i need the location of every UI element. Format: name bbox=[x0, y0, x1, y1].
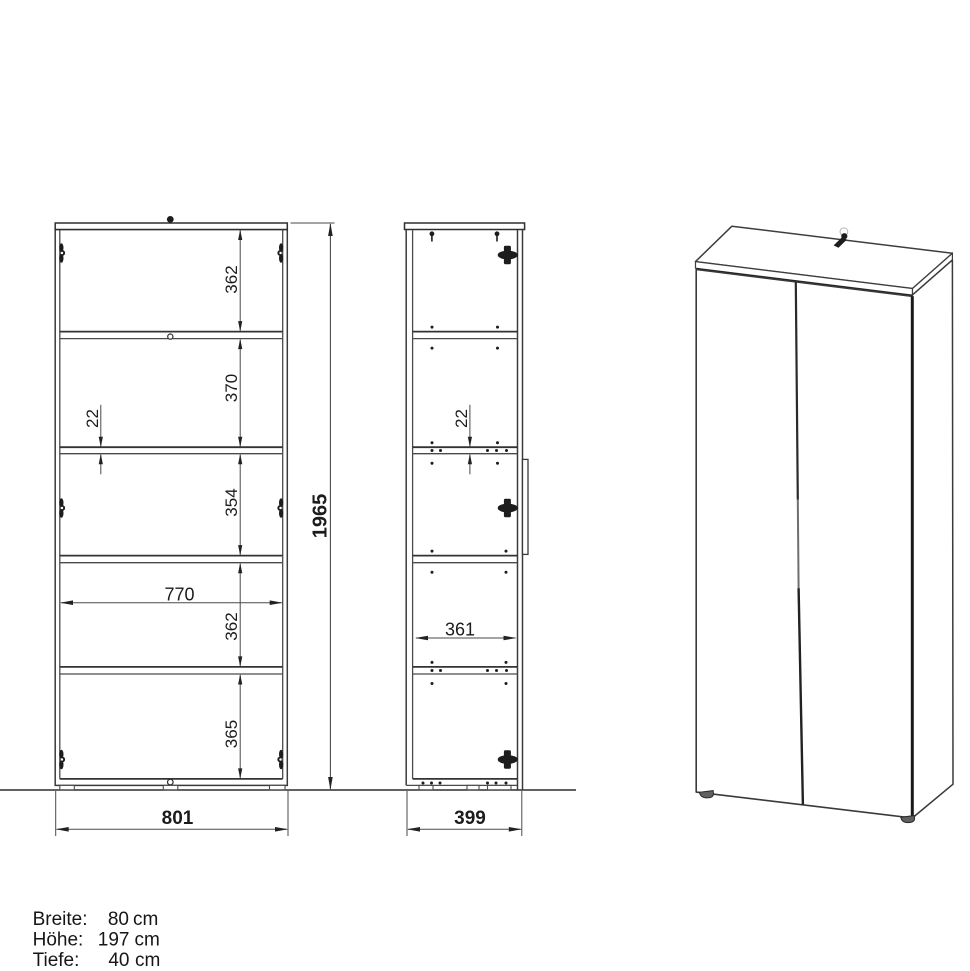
svg-text:Breite:: Breite: bbox=[33, 909, 88, 930]
svg-text:370: 370 bbox=[222, 374, 241, 402]
svg-text:361: 361 bbox=[445, 619, 475, 639]
svg-text:Höhe:: Höhe: bbox=[33, 930, 84, 951]
svg-text:362: 362 bbox=[222, 265, 241, 293]
svg-text:197: 197 bbox=[98, 930, 130, 951]
svg-text:22: 22 bbox=[83, 409, 102, 428]
svg-text:354: 354 bbox=[222, 488, 241, 516]
svg-text:Tiefe:: Tiefe: bbox=[33, 950, 80, 971]
svg-text:cm: cm bbox=[133, 909, 158, 930]
svg-text:22: 22 bbox=[452, 409, 471, 428]
svg-text:40: 40 bbox=[108, 950, 129, 971]
svg-text:80: 80 bbox=[108, 909, 129, 930]
svg-text:801: 801 bbox=[162, 808, 194, 829]
svg-text:365: 365 bbox=[222, 720, 241, 748]
svg-text:cm: cm bbox=[135, 950, 160, 971]
svg-text:770: 770 bbox=[164, 584, 194, 604]
svg-text:399: 399 bbox=[454, 808, 486, 829]
svg-text:362: 362 bbox=[222, 612, 241, 640]
svg-text:cm: cm bbox=[135, 930, 160, 951]
svg-text:1965: 1965 bbox=[309, 494, 331, 539]
